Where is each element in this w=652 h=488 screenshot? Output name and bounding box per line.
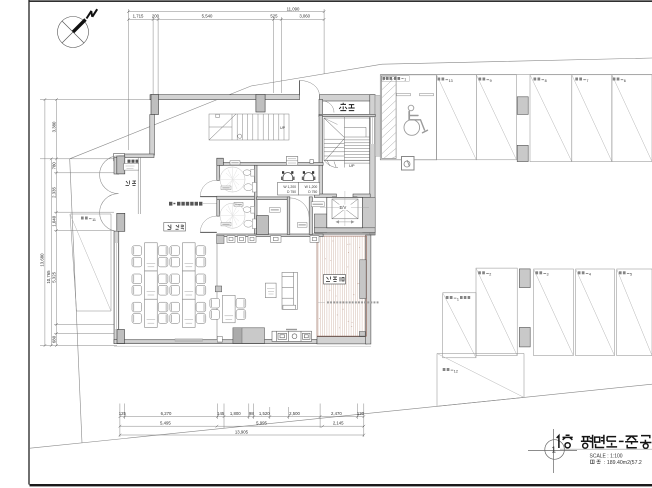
svg-text:200: 200 xyxy=(152,14,160,19)
svg-text:1,715: 1,715 xyxy=(133,14,144,19)
svg-text:13: 13 xyxy=(449,79,453,83)
svg-text:125: 125 xyxy=(119,411,127,416)
svg-text:6,270: 6,270 xyxy=(161,411,172,416)
svg-text:1: 1 xyxy=(457,297,459,301)
svg-text:2,470: 2,470 xyxy=(331,411,342,416)
svg-text:8: 8 xyxy=(545,79,547,83)
svg-text:SCALE : 1:100: SCALE : 1:100 xyxy=(590,454,623,460)
svg-text:6: 6 xyxy=(624,79,626,83)
svg-text:98: 98 xyxy=(249,411,254,416)
svg-text:780: 780 xyxy=(51,162,56,170)
svg-text:525: 525 xyxy=(270,14,278,19)
svg-text:2,500: 2,500 xyxy=(289,411,300,416)
svg-text:5,325: 5,325 xyxy=(51,271,56,282)
svg-text:1,520: 1,520 xyxy=(259,411,270,416)
svg-text:145: 145 xyxy=(217,411,225,416)
svg-text:1,040: 1,040 xyxy=(51,215,56,226)
svg-text:130: 130 xyxy=(357,411,365,416)
svg-text:D 750: D 750 xyxy=(287,190,296,194)
svg-text:5: 5 xyxy=(630,273,632,277)
svg-text:12: 12 xyxy=(454,369,458,373)
svg-text:11: 11 xyxy=(92,218,96,222)
svg-text:4: 4 xyxy=(589,273,591,277)
svg-text:W 1,200: W 1,200 xyxy=(305,185,318,189)
svg-text:5,540: 5,540 xyxy=(202,14,213,19)
svg-text:5,495: 5,495 xyxy=(160,421,171,426)
svg-text:11,090: 11,090 xyxy=(287,6,300,11)
svg-text:7: 7 xyxy=(586,79,588,83)
svg-text:9: 9 xyxy=(490,79,492,83)
svg-text:D 750: D 750 xyxy=(308,190,317,194)
svg-text:3,380: 3,380 xyxy=(51,121,56,132)
svg-text:5,995: 5,995 xyxy=(256,421,267,426)
svg-text:2: 2 xyxy=(489,273,491,277)
svg-text:2,145: 2,145 xyxy=(333,421,344,426)
svg-text:1: 1 xyxy=(552,446,557,455)
svg-text:10,765: 10,765 xyxy=(46,270,51,284)
svg-text:E/V: E/V xyxy=(340,205,347,210)
svg-text:13,680: 13,680 xyxy=(40,253,45,267)
svg-text:UP: UP xyxy=(349,163,355,168)
svg-text:1,800: 1,800 xyxy=(230,411,241,416)
svg-text:3: 3 xyxy=(547,273,549,277)
svg-text:680: 680 xyxy=(51,335,56,343)
svg-text:: 189.40m2(57.2: : 189.40m2(57.2 xyxy=(604,460,642,466)
svg-text:2,335: 2,335 xyxy=(51,187,56,198)
svg-text:3,060: 3,060 xyxy=(299,14,310,19)
svg-text:13,905: 13,905 xyxy=(235,430,249,435)
svg-text:UP: UP xyxy=(280,126,286,130)
svg-text:W 1,200: W 1,200 xyxy=(283,185,296,189)
svg-text:1: 1 xyxy=(404,77,406,81)
